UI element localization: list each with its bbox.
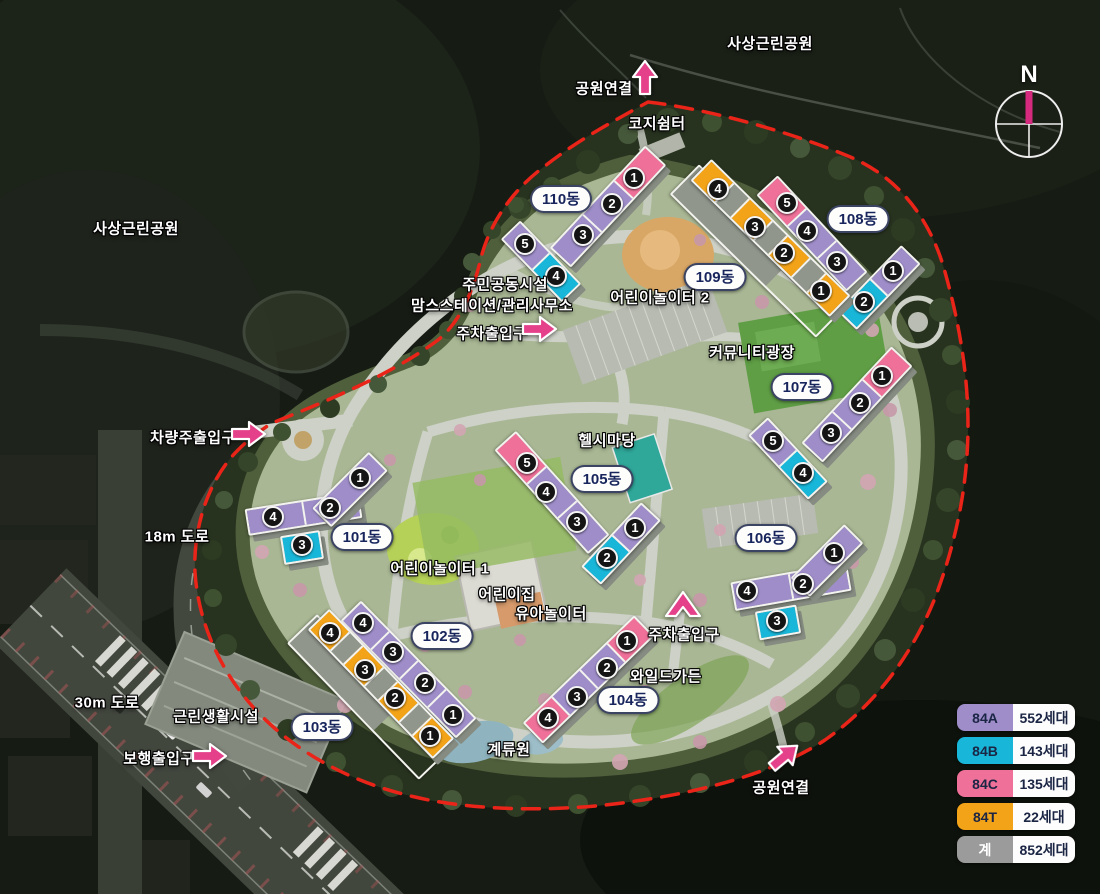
building-label-104: 104동 xyxy=(597,686,660,714)
legend-value-84T: 22세대 xyxy=(1013,803,1075,830)
legend-key-계: 계 xyxy=(957,836,1013,863)
unit-circle-110-2: 2 xyxy=(601,193,623,215)
community-facility-label-line2: 맘스스테이션/관리사무소 xyxy=(411,295,573,316)
unit-circle-104-3: 3 xyxy=(566,686,588,708)
compass-dial xyxy=(993,88,1065,160)
legend-key-84T: 84T xyxy=(957,803,1013,830)
compass-north-label: N xyxy=(993,62,1065,88)
legend-row-84T: 84T22세대 xyxy=(957,803,1075,830)
legend-row-84A: 84A552세대 xyxy=(957,704,1075,731)
unit-circle-107-3: 3 xyxy=(820,422,842,444)
children-playground2-label: 어린이놀이터 2 xyxy=(610,287,709,308)
daycare-label: 어린이집 xyxy=(478,584,535,605)
building-label-103: 103동 xyxy=(291,713,354,741)
unit-circle-105-4: 4 xyxy=(535,481,557,503)
park-label-top: 사상근린공원 xyxy=(727,33,813,54)
unit-circle-102-4: 4 xyxy=(352,612,374,634)
building-label-102: 102동 xyxy=(411,622,474,650)
unit-circle-108-1: 1 xyxy=(882,260,904,282)
unit-circle-108-4: 4 xyxy=(796,220,818,242)
toddler-playground-label: 유아놀이터 xyxy=(515,603,587,624)
healthy-yard-label: 헬시마당 xyxy=(578,430,635,451)
legend-row-84C: 84C135세대 xyxy=(957,770,1075,797)
unit-circle-110-4: 4 xyxy=(545,265,567,287)
unit-circle-108-3: 3 xyxy=(826,251,848,273)
unit-circle-109-3: 3 xyxy=(744,216,766,238)
neighborhood-facility-label: 근린생활시설 xyxy=(173,706,259,727)
community-plaza-label: 커뮤니티광장 xyxy=(709,342,795,363)
building-label-108: 108동 xyxy=(827,205,890,233)
legend-key-84A: 84A xyxy=(957,704,1013,731)
unit-circle-102-1: 1 xyxy=(442,704,464,726)
unit-circle-103-2: 2 xyxy=(384,687,406,709)
unit-type-legend: 84A552세대84B143세대84C135세대84T22세대계852세대 xyxy=(957,704,1075,869)
unit-circle-107-2: 2 xyxy=(849,392,871,414)
community-facility-label-line1: 주민공동시설 xyxy=(462,274,548,295)
unit-circle-107-5: 5 xyxy=(762,430,784,452)
vehicle-main-entrance-arrow-icon xyxy=(230,419,268,449)
unit-circle-106-3: 3 xyxy=(766,610,788,632)
park-link-bottom-arrow-icon xyxy=(761,732,809,779)
unit-circle-109-4: 4 xyxy=(707,178,729,200)
unit-circle-101-4: 4 xyxy=(262,506,284,528)
park-link-top-label: 공원연결 xyxy=(575,78,632,99)
labels-layer: 1234101동4321102동4321103동1234104동54312105… xyxy=(0,0,1100,894)
parking-entrance-south-arrow-icon xyxy=(664,590,702,620)
unit-circle-106-1: 1 xyxy=(823,542,845,564)
compass: N xyxy=(993,62,1065,165)
unit-circle-105-2: 2 xyxy=(596,547,618,569)
unit-circle-101-1: 1 xyxy=(349,467,371,489)
park-link-bottom-label: 공원연결 xyxy=(752,777,809,798)
unit-circle-101-2: 2 xyxy=(319,497,341,519)
building-label-101: 101동 xyxy=(331,523,394,551)
legend-value-84C: 135세대 xyxy=(1013,770,1075,797)
park-link-top-arrow-icon xyxy=(630,58,660,96)
building-label-107: 107동 xyxy=(771,373,834,401)
unit-circle-110-1: 1 xyxy=(623,167,645,189)
legend-row-84B: 84B143세대 xyxy=(957,737,1075,764)
park-label-left: 사상근린공원 xyxy=(93,218,179,239)
legend-key-84B: 84B xyxy=(957,737,1013,764)
legend-key-84C: 84C xyxy=(957,770,1013,797)
unit-circle-106-4: 4 xyxy=(736,580,758,602)
unit-circle-105-5: 5 xyxy=(516,452,538,474)
unit-circle-104-2: 2 xyxy=(596,657,618,679)
legend-value-계: 852세대 xyxy=(1013,836,1075,863)
parking-entrance-south-label: 주차출입구 xyxy=(648,624,720,645)
building-label-105: 105동 xyxy=(571,465,634,493)
unit-circle-103-1: 1 xyxy=(419,725,441,747)
unit-circle-109-2: 2 xyxy=(773,242,795,264)
unit-circle-104-1: 1 xyxy=(616,630,638,652)
unit-circle-101-3: 3 xyxy=(291,534,313,556)
unit-circle-107-1: 1 xyxy=(871,365,893,387)
unit-circle-108-2: 2 xyxy=(853,291,875,313)
vehicle-main-entrance-label: 차량주출입구 xyxy=(150,427,236,448)
pedestrian-entrance-arrow-icon xyxy=(191,741,229,771)
parking-entrance-west-label: 주차출입구 xyxy=(456,323,528,344)
unit-circle-104-4: 4 xyxy=(537,707,559,729)
wild-garden-label: 와일드가든 xyxy=(630,666,702,687)
unit-circle-110-3: 3 xyxy=(572,224,594,246)
parking-entrance-west-arrow-icon xyxy=(521,314,559,344)
building-label-110: 110동 xyxy=(530,185,592,213)
legend-value-84B: 143세대 xyxy=(1013,737,1075,764)
unit-circle-109-1: 1 xyxy=(810,280,832,302)
pedestrian-entrance-label: 보행출입구 xyxy=(123,748,195,769)
legend-value-84A: 552세대 xyxy=(1013,704,1075,731)
children-playground1-label: 어린이놀이터 1 xyxy=(390,558,489,579)
unit-circle-107-4: 4 xyxy=(792,462,814,484)
unit-circle-105-1: 1 xyxy=(624,517,646,539)
unit-circle-106-2: 2 xyxy=(792,573,814,595)
unit-circle-108-5: 5 xyxy=(776,192,798,214)
unit-circle-105-3: 3 xyxy=(566,511,588,533)
legend-row-계: 계852세대 xyxy=(957,836,1075,863)
cozy-shelter-label: 코지쉼터 xyxy=(628,113,685,134)
unit-circle-103-4: 4 xyxy=(319,622,341,644)
unit-circle-102-3: 3 xyxy=(382,641,404,663)
stream-garden-label: 계류원 xyxy=(488,739,531,760)
unit-circle-110-5: 5 xyxy=(514,233,536,255)
road-18m-label: 18m 도로 xyxy=(145,526,210,547)
unit-circle-102-2: 2 xyxy=(414,672,436,694)
road-30m-label: 30m 도로 xyxy=(75,692,140,713)
building-label-106: 106동 xyxy=(735,524,798,552)
site-plan-map: 1234101동4321102동4321103동1234104동54312105… xyxy=(0,0,1100,894)
unit-circle-103-3: 3 xyxy=(354,659,376,681)
